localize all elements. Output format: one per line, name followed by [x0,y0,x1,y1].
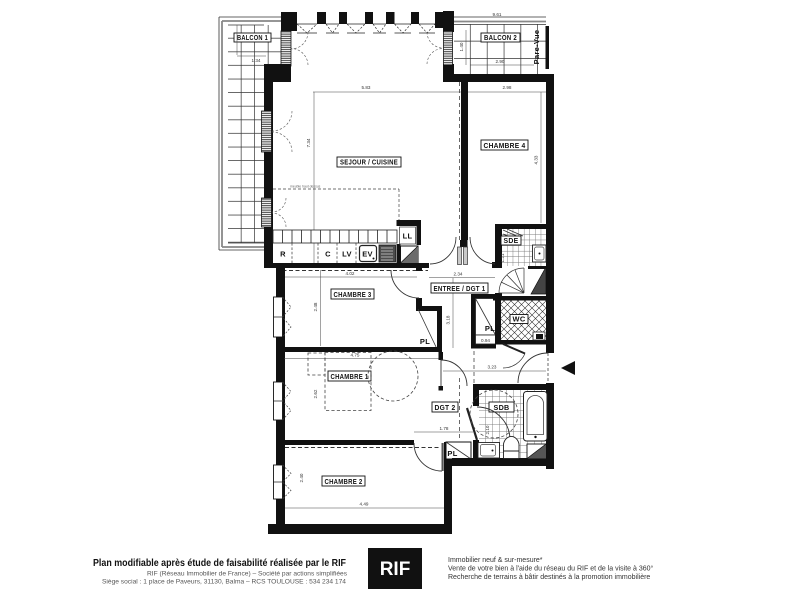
svg-text:9.61: 9.61 [493,12,502,17]
svg-text:SDB: SDB [494,403,510,412]
svg-text:BALCON 2: BALCON 2 [484,33,517,42]
svg-text:4.75: 4.75 [351,353,360,358]
svg-text:1.78: 1.78 [440,426,449,431]
svg-text:DGT 2: DGT 2 [435,403,456,412]
svg-text:BALCON 1: BALCON 1 [237,33,268,42]
svg-text:5.83: 5.83 [362,85,371,90]
svg-text:7.34: 7.34 [306,138,311,147]
svg-text:2.40: 2.40 [299,473,304,482]
svg-text:2.10: 2.10 [485,425,490,434]
svg-text:0.94: 0.94 [481,338,490,343]
svg-text:2.62: 2.62 [313,389,318,398]
svg-text:2.90: 2.90 [496,59,505,64]
svg-text:Vente de votre bien à l'aide d: Vente de votre bien à l'aide du réseau d… [448,565,654,573]
svg-text:2.98: 2.98 [503,85,512,90]
svg-text:4.33: 4.33 [534,155,539,164]
svg-text:EV: EV [362,250,373,259]
svg-text:3.23: 3.23 [488,365,497,370]
svg-text:LL: LL [403,232,413,241]
svg-text:Recherche de terrains à bâtir: Recherche de terrains à bâtir destinés à… [448,574,650,581]
svg-text:2.48: 2.48 [313,302,318,311]
svg-text:SEJOUR / CUISINE: SEJOUR / CUISINE [340,158,398,167]
svg-text:4.49: 4.49 [360,502,369,507]
svg-text:PL: PL [420,337,430,346]
svg-text:meuble haut dessus: meuble haut dessus [290,185,321,189]
svg-text:SDE: SDE [504,236,519,245]
svg-text:CHAMBRE 4: CHAMBRE 4 [484,141,526,150]
svg-text:3.18: 3.18 [446,315,451,324]
svg-text:4.02: 4.02 [346,271,355,276]
svg-text:1.34: 1.34 [252,58,261,63]
svg-text:CHAMBRE 1: CHAMBRE 1 [331,372,369,381]
svg-text:LV: LV [342,250,352,259]
svg-text:C: C [325,250,331,259]
svg-text:1.21: 1.21 [500,253,505,262]
svg-text:Immobilier neuf & sur-mesure*: Immobilier neuf & sur-mesure* [448,557,543,564]
svg-text:CHAMBRE 2: CHAMBRE 2 [325,477,363,486]
svg-text:WC: WC [513,315,526,324]
svg-text:PL: PL [485,324,495,333]
svg-text:CHAMBRE 3: CHAMBRE 3 [334,290,372,299]
svg-text:R: R [280,250,286,259]
svg-text:ENTREE / DGT 1: ENTREE / DGT 1 [434,284,486,293]
svg-text:Siège social : 1 place de Pave: Siège social : 1 place de Paveurs, 31130… [102,580,347,586]
svg-text:2.34: 2.34 [454,272,463,277]
svg-text:1.40: 1.40 [459,42,464,51]
svg-text:PL: PL [447,449,457,458]
svg-text:RIF (Réseau Immobilier de Fran: RIF (Réseau Immobilier de France) – Soci… [147,572,347,578]
svg-text:RIF: RIF [380,559,411,580]
svg-text:Plan modifiable après étude de: Plan modifiable après étude de faisabili… [93,558,346,569]
svg-text:Pare-Vue: Pare-Vue [532,30,541,65]
